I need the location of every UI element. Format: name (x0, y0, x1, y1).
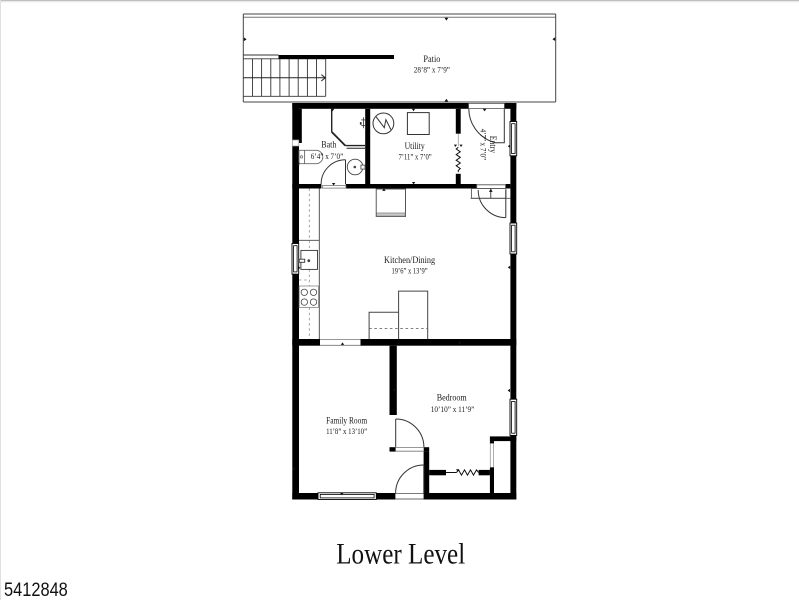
svg-text:Lower Level: Lower Level (336, 538, 465, 571)
svg-text:Family Room: Family Room (326, 417, 367, 427)
svg-text:10’10” x 11’9”: 10’10” x 11’9” (431, 405, 475, 414)
svg-text:5412848: 5412848 (4, 580, 68, 600)
svg-text:28’8” x 7’9”: 28’8” x 7’9” (414, 65, 451, 74)
svg-text:6’4” x 7’0”: 6’4” x 7’0” (311, 152, 344, 161)
svg-text:Bedroom: Bedroom (437, 394, 468, 404)
svg-text:4’7” x 7’0”: 4’7” x 7’0” (478, 129, 487, 160)
svg-text:Utility: Utility (405, 142, 425, 152)
svg-text:Entry: Entry (488, 136, 498, 154)
svg-text:7’11” x 7’0”: 7’11” x 7’0” (398, 153, 432, 162)
svg-text:Patio: Patio (423, 55, 440, 65)
svg-text:11’8” x 13’10”: 11’8” x 13’10” (326, 427, 367, 436)
svg-text:19’6” x 13’9”: 19’6” x 13’9” (392, 267, 428, 276)
svg-text:Bath: Bath (321, 140, 336, 150)
svg-text:Kitchen/Dining: Kitchen/Dining (384, 256, 435, 266)
